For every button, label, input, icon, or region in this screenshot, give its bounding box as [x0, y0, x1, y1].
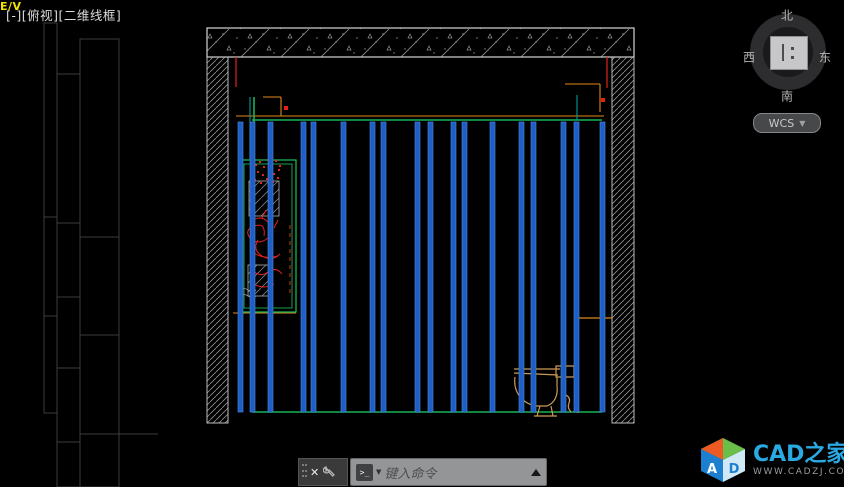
- wcs-label: WCS: [769, 117, 795, 130]
- cadzj-cube-logo-icon: A D: [700, 437, 746, 483]
- wcs-dropdown[interactable]: WCS ▼: [753, 113, 821, 133]
- viewport-controls[interactable]: [-][俯视][二维线框]: [6, 5, 121, 24]
- chevron-down-icon: ▼: [799, 119, 805, 128]
- compass-south[interactable]: 南: [781, 88, 793, 105]
- brand-name: CAD之家: [753, 443, 844, 466]
- left-wall-panels: [44, 23, 158, 487]
- drag-handle-icon[interactable]: [302, 464, 306, 480]
- brand-url: WWW.CADZJ.COM: [753, 467, 844, 477]
- command-prompt-icon[interactable]: >_: [356, 464, 373, 481]
- command-dock-toolbar: ✕: [298, 458, 348, 486]
- command-input[interactable]: >_ ▼ 键入命令: [350, 458, 547, 486]
- wrench-icon[interactable]: [323, 465, 337, 479]
- cube-face-dot: [791, 56, 794, 59]
- view-cube-top-face[interactable]: [770, 36, 808, 70]
- cad-drawing-canvas[interactable]: [0, 0, 844, 487]
- svg-text:A: A: [707, 462, 717, 477]
- compass-west[interactable]: 西: [743, 49, 755, 66]
- close-icon[interactable]: ✕: [310, 467, 319, 478]
- cube-face-glyph: [782, 44, 784, 61]
- view-cube[interactable]: 北 西 东 南: [734, 2, 842, 112]
- application-window: [-][俯视][二维线框] E/V 北 西 东 南 WCS ▼ ✕ >_ ▼ 键…: [0, 0, 844, 487]
- expand-command-history-icon[interactable]: [531, 469, 541, 476]
- ev-annotation-text: E/V: [0, 0, 22, 13]
- svg-text:D: D: [729, 462, 740, 477]
- compass-north[interactable]: 北: [781, 7, 793, 24]
- command-placeholder: 键入命令: [384, 463, 528, 482]
- compass-east[interactable]: 东: [819, 49, 831, 66]
- recent-commands-caret-icon[interactable]: ▼: [376, 468, 381, 476]
- cadzj-watermark: A D CAD之家 WWW.CADZJ.COM: [700, 437, 844, 483]
- cube-face-dot: [791, 47, 794, 50]
- command-line-dock: ✕ >_ ▼ 键入命令: [298, 458, 547, 486]
